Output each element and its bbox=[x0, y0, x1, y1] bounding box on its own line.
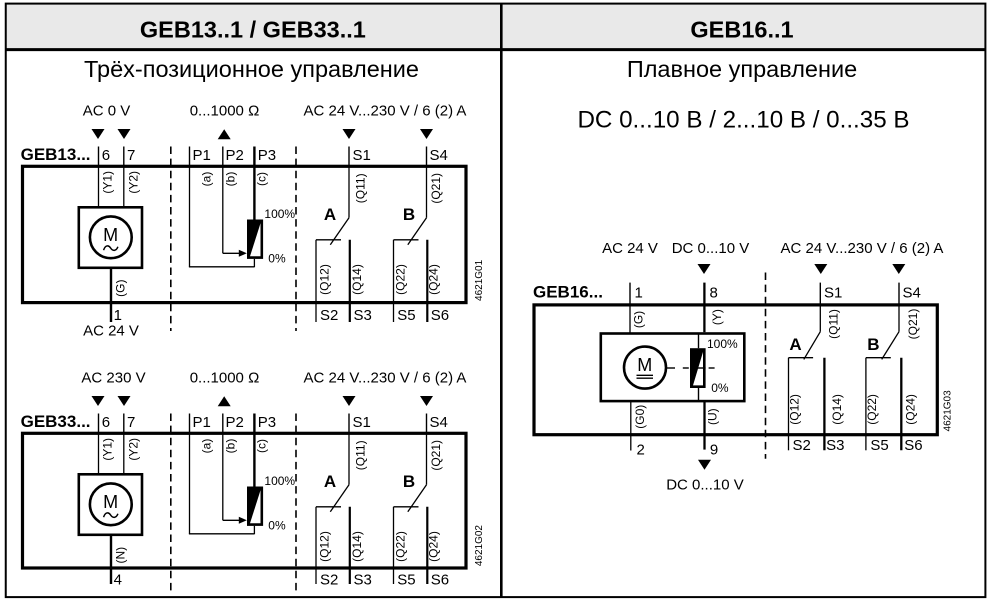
svg-text:(Q11): (Q11) bbox=[827, 309, 841, 339]
svg-text:M: M bbox=[637, 355, 652, 375]
svg-text:0%: 0% bbox=[268, 251, 286, 265]
svg-text:S3: S3 bbox=[354, 571, 372, 588]
svg-text:P2: P2 bbox=[226, 147, 244, 164]
svg-text:100%: 100% bbox=[264, 474, 295, 488]
svg-text:0...1000 Ω: 0...1000 Ω bbox=[190, 103, 260, 120]
svg-text:(Q22): (Q22) bbox=[394, 531, 408, 562]
svg-text:S1: S1 bbox=[353, 414, 371, 431]
svg-text:(Q14): (Q14) bbox=[350, 531, 364, 562]
svg-text:S2: S2 bbox=[320, 571, 338, 588]
svg-text:B: B bbox=[403, 205, 415, 224]
svg-text:(Q14): (Q14) bbox=[830, 394, 844, 425]
svg-text:1: 1 bbox=[635, 284, 643, 301]
svg-text:0...1000 Ω: 0...1000 Ω bbox=[190, 370, 260, 387]
svg-text:AC 230 V: AC 230 V bbox=[81, 370, 145, 387]
svg-text:(Q12): (Q12) bbox=[788, 394, 802, 425]
svg-text:(Q21): (Q21) bbox=[429, 440, 443, 471]
svg-text:(Q11): (Q11) bbox=[353, 173, 367, 203]
svg-text:(Y1): (Y1) bbox=[101, 438, 115, 461]
svg-text:0%: 0% bbox=[268, 518, 286, 532]
svg-text:S1: S1 bbox=[824, 284, 842, 301]
svg-text:(Q11): (Q11) bbox=[353, 440, 367, 470]
svg-text:100%: 100% bbox=[264, 207, 295, 221]
svg-text:7: 7 bbox=[127, 147, 135, 164]
svg-text:AC 24 V...230 V / 6 (2) A: AC 24 V...230 V / 6 (2) A bbox=[304, 103, 467, 120]
svg-text:P2: P2 bbox=[226, 414, 244, 431]
svg-text:GEB13..1 / GEB33..1: GEB13..1 / GEB33..1 bbox=[140, 16, 366, 42]
svg-text:S4: S4 bbox=[903, 284, 921, 301]
svg-text:(a): (a) bbox=[199, 172, 213, 187]
svg-text:DC 0...10 V: DC 0...10 V bbox=[672, 240, 750, 257]
svg-text:M: M bbox=[103, 492, 118, 512]
svg-text:(Q24): (Q24) bbox=[427, 531, 441, 562]
svg-text:DC 0...10 В / 2...10 В / 0...3: DC 0...10 В / 2...10 В / 0...35 В bbox=[577, 107, 909, 134]
svg-text:(Y2): (Y2) bbox=[127, 171, 141, 194]
svg-text:S3: S3 bbox=[826, 437, 844, 454]
svg-text:AC 24 V: AC 24 V bbox=[83, 323, 139, 340]
svg-text:P1: P1 bbox=[193, 414, 211, 431]
svg-text:Трёх-позиционное управление: Трёх-позиционное управление bbox=[84, 56, 419, 82]
svg-text:(Q22): (Q22) bbox=[865, 394, 879, 425]
svg-text:S5: S5 bbox=[397, 571, 415, 588]
svg-text:(b): (b) bbox=[224, 172, 238, 187]
svg-text:6: 6 bbox=[102, 414, 110, 431]
svg-text:Плавное управление: Плавное управление bbox=[627, 56, 857, 82]
svg-text:GEB16..1: GEB16..1 bbox=[690, 16, 793, 42]
svg-text:S2: S2 bbox=[320, 307, 338, 324]
svg-text:S3: S3 bbox=[354, 307, 372, 324]
svg-text:AC 24 V...230 V / 6 (2) A: AC 24 V...230 V / 6 (2) A bbox=[781, 240, 944, 257]
svg-text:AC 24 V: AC 24 V bbox=[602, 240, 658, 257]
svg-text:(c): (c) bbox=[254, 172, 268, 186]
svg-text:S6: S6 bbox=[904, 437, 922, 454]
svg-text:0%: 0% bbox=[711, 381, 729, 395]
svg-text:(Q12): (Q12) bbox=[318, 531, 332, 562]
svg-text:(Q12): (Q12) bbox=[318, 264, 332, 295]
svg-text:P3: P3 bbox=[258, 414, 276, 431]
svg-text:B: B bbox=[867, 335, 879, 354]
svg-text:A: A bbox=[789, 335, 801, 354]
svg-text:S2: S2 bbox=[793, 437, 811, 454]
svg-text:(Y2): (Y2) bbox=[127, 438, 141, 461]
svg-text:S4: S4 bbox=[430, 414, 448, 431]
svg-text:(Q21): (Q21) bbox=[906, 309, 920, 340]
svg-text:S5: S5 bbox=[870, 437, 888, 454]
svg-text:B: B bbox=[403, 472, 415, 491]
svg-text:S6: S6 bbox=[431, 307, 449, 324]
svg-text:AC 24 V...230 V / 6 (2) A: AC 24 V...230 V / 6 (2) A bbox=[304, 370, 467, 387]
svg-text:(G): (G) bbox=[113, 280, 127, 297]
svg-text:S6: S6 bbox=[431, 571, 449, 588]
svg-text:(Q22): (Q22) bbox=[394, 264, 408, 295]
svg-text:(Y1): (Y1) bbox=[101, 171, 115, 194]
svg-text:9: 9 bbox=[710, 442, 718, 459]
svg-text:AC 0 V: AC 0 V bbox=[83, 103, 131, 120]
svg-text:6: 6 bbox=[102, 147, 110, 164]
svg-text:(N): (N) bbox=[113, 547, 127, 564]
svg-text:(c): (c) bbox=[254, 439, 268, 453]
svg-text:(Q24): (Q24) bbox=[904, 394, 918, 425]
svg-text:P1: P1 bbox=[193, 147, 211, 164]
svg-text:7: 7 bbox=[127, 414, 135, 431]
svg-text:4621G02: 4621G02 bbox=[474, 525, 485, 567]
svg-text:M: M bbox=[103, 225, 118, 245]
svg-text:P3: P3 bbox=[258, 147, 276, 164]
svg-text:4: 4 bbox=[114, 571, 122, 588]
svg-text:(U): (U) bbox=[706, 408, 720, 425]
svg-text:2: 2 bbox=[637, 442, 645, 459]
svg-text:(G0): (G0) bbox=[633, 405, 647, 429]
svg-text:(Q24): (Q24) bbox=[427, 264, 441, 295]
svg-text:1: 1 bbox=[114, 307, 122, 324]
svg-text:GEB13...: GEB13... bbox=[21, 145, 91, 164]
svg-text:S4: S4 bbox=[430, 147, 448, 164]
svg-text:(Q21): (Q21) bbox=[429, 173, 443, 204]
svg-text:100%: 100% bbox=[707, 337, 738, 351]
svg-text:S1: S1 bbox=[353, 147, 371, 164]
svg-text:(Y): (Y) bbox=[710, 309, 724, 325]
svg-text:GEB16...: GEB16... bbox=[533, 282, 603, 301]
svg-text:8: 8 bbox=[710, 284, 718, 301]
svg-text:A: A bbox=[324, 205, 336, 224]
svg-text:A: A bbox=[324, 472, 336, 491]
svg-text:4621G01: 4621G01 bbox=[474, 259, 485, 301]
svg-text:S5: S5 bbox=[397, 307, 415, 324]
svg-text:DC 0...10 V: DC 0...10 V bbox=[666, 476, 744, 493]
svg-text:(a): (a) bbox=[199, 439, 213, 454]
svg-text:GEB33...: GEB33... bbox=[21, 412, 91, 431]
svg-text:(b): (b) bbox=[224, 439, 238, 454]
svg-text:(G): (G) bbox=[632, 311, 646, 328]
svg-text:4621G03: 4621G03 bbox=[943, 390, 954, 432]
svg-text:(Q14): (Q14) bbox=[350, 264, 364, 295]
